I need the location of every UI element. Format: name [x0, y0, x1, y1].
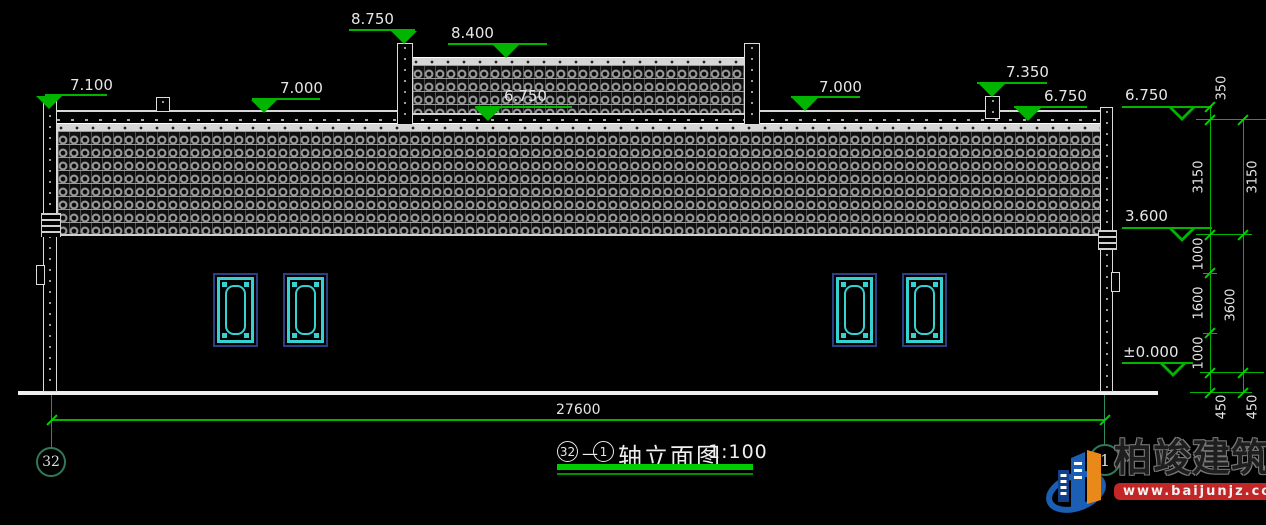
raised-roof-tiles — [412, 65, 750, 115]
pillar-center-left — [397, 43, 413, 125]
dim-tick-stub — [1203, 273, 1217, 274]
elevation-label: ±0.000 — [1123, 343, 1179, 361]
elevation-triangle-icon — [979, 84, 1005, 97]
elevation-triangle-icon — [251, 100, 277, 113]
pillar-left-bracket — [36, 265, 45, 285]
window-corner-dot — [222, 333, 227, 338]
pillar-small-right — [985, 96, 1000, 119]
window-corner-dot — [292, 282, 297, 287]
pillar-right-bracket — [1111, 272, 1120, 292]
elevation-triangle-icon — [792, 98, 818, 111]
axis-bubble-left: 32 — [36, 447, 66, 477]
dim-chain-outer — [1243, 119, 1244, 393]
window-corner-dot — [244, 282, 249, 287]
elevation-triangle-icon — [493, 45, 519, 58]
dim-label: 3600 — [1224, 288, 1239, 321]
elevation-label: 3.600 — [1125, 207, 1168, 225]
window-corner-dot — [841, 282, 846, 287]
elevation-leader — [1122, 106, 1212, 108]
dim-label: 3150 — [1192, 160, 1207, 193]
main-roof-tiles — [57, 131, 1102, 236]
elevation-label: 7.100 — [70, 76, 113, 94]
ground-line — [18, 391, 1158, 395]
window-corner-dot — [314, 333, 319, 338]
watermark-url: www.baijunjz.com — [1114, 483, 1266, 500]
elevation-triangle-icon — [1169, 108, 1195, 121]
window-corner-dot — [314, 282, 319, 287]
title-axis-start-bubble: 32 — [557, 441, 578, 462]
pillar-center-right — [744, 43, 760, 125]
window — [283, 273, 328, 347]
window — [213, 273, 258, 347]
window-inner-frame — [225, 285, 246, 335]
dim-label: 1000 — [1192, 336, 1207, 369]
elevation-triangle-icon — [1160, 364, 1186, 377]
elevation-leader — [1122, 227, 1212, 229]
window — [832, 273, 877, 347]
title-underline-thin — [557, 473, 753, 475]
window-frame — [287, 277, 324, 343]
watermark-logo-icon — [1046, 436, 1112, 524]
total-dim-line — [52, 419, 1105, 421]
window-corner-dot — [911, 282, 916, 287]
pillar-small-left — [156, 97, 170, 112]
dim-label: 350 — [1215, 76, 1230, 101]
window-corner-dot — [244, 333, 249, 338]
elevation-drawing: 7.100 7.000 8.750 8.400 6.750 7.000 7.35… — [0, 0, 1266, 525]
window-frame — [906, 277, 943, 343]
elevation-label: 8.750 — [351, 10, 394, 28]
elevation-triangle-icon — [1015, 108, 1041, 121]
window-corner-dot — [863, 282, 868, 287]
window-corner-dot — [292, 333, 297, 338]
title-underline — [557, 464, 753, 470]
window-corner-dot — [933, 333, 938, 338]
window-frame — [836, 277, 873, 343]
pillar-left-bands — [41, 213, 61, 237]
elevation-label: 6.750 — [504, 87, 547, 105]
pillar-right-bands — [1098, 230, 1117, 250]
window-frame — [217, 277, 254, 343]
window-inner-frame — [914, 285, 935, 335]
dim-label: 1600 — [1192, 286, 1207, 319]
window-corner-dot — [222, 282, 227, 287]
elevation-label: 7.000 — [280, 79, 323, 97]
dim-label: 450 — [1246, 395, 1261, 420]
window — [902, 273, 947, 347]
dim-label: 3150 — [1246, 160, 1261, 193]
watermark-name: 柏竣建筑 — [1114, 436, 1266, 480]
dim-label: 1000 — [1192, 237, 1207, 270]
dim-extension — [1196, 119, 1266, 120]
title-axis-end-bubble: 1 — [593, 441, 614, 462]
total-width-label: 27600 — [556, 402, 601, 418]
elevation-triangle-icon — [36, 96, 62, 109]
window-corner-dot — [841, 333, 846, 338]
window-inner-frame — [844, 285, 865, 335]
window-inner-frame — [295, 285, 316, 335]
window-corner-dot — [911, 333, 916, 338]
elevation-triangle-icon — [391, 31, 417, 44]
window-corner-dot — [863, 333, 868, 338]
dim-label: 450 — [1215, 395, 1230, 420]
elevation-label: 7.000 — [819, 78, 862, 96]
elevation-triangle-icon — [475, 108, 501, 121]
elevation-label: 6.750 — [1125, 86, 1168, 104]
window-corner-dot — [933, 282, 938, 287]
dim-chain-inner — [1210, 106, 1211, 393]
elevation-label: 6.750 — [1044, 87, 1087, 105]
pillar-left-end — [43, 100, 57, 392]
dim-tick-stub — [1203, 333, 1217, 334]
drawing-scale: 1:100 — [708, 441, 768, 463]
watermark: 柏竣建筑 www.baijunjz.com — [1046, 436, 1266, 524]
elevation-label: 8.400 — [451, 24, 494, 42]
elevation-label: 7.350 — [1006, 63, 1049, 81]
